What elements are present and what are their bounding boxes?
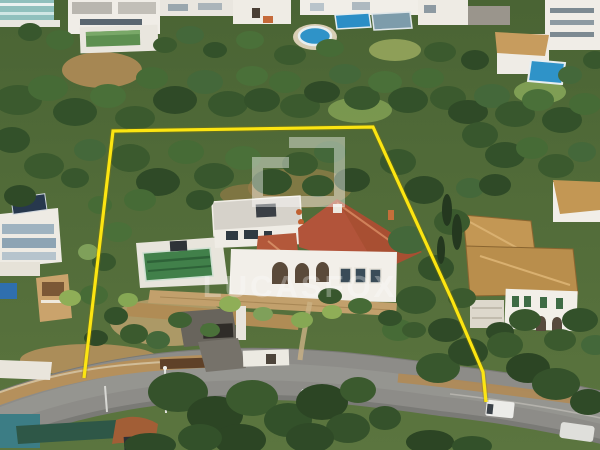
lucasfox-watermark-text: LUCASFOX: [203, 269, 398, 304]
cypress-tree: [442, 194, 452, 226]
rect-blue-pool: [335, 13, 371, 29]
covered-pool: [372, 12, 412, 30]
palm-tree: [78, 244, 98, 260]
sand-roof-lower: [466, 246, 578, 296]
aerial-photo: LUCASFOX: [0, 0, 600, 450]
aerial-photo-scene: LUCASFOX: [0, 0, 600, 450]
